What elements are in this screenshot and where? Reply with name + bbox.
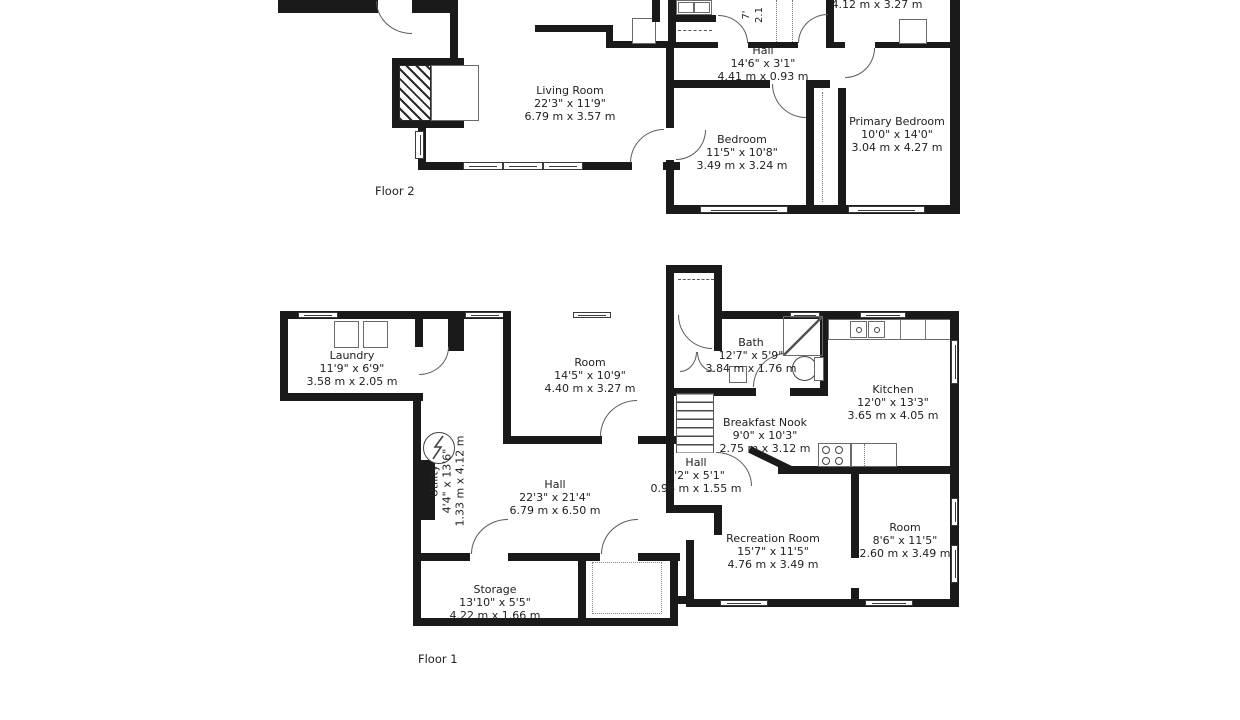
- window: [848, 206, 925, 213]
- room-name: Storage: [450, 583, 541, 596]
- room-dim-m: 3.58 m x 2.05 m: [307, 375, 398, 388]
- wall: [280, 393, 423, 401]
- wall: [830, 42, 845, 48]
- staircase: [676, 393, 714, 453]
- room-dim-m: 2.60 m x 3.49 m: [860, 547, 951, 560]
- burner: [835, 457, 843, 465]
- washer: [334, 321, 359, 348]
- room-dim-ft: 8'6" x 11'5": [860, 534, 951, 547]
- room-name: Living Room: [525, 84, 616, 97]
- closet-rail: [792, 0, 793, 42]
- burner: [835, 446, 843, 454]
- room-name: Kitchen: [848, 383, 939, 396]
- room-name: Hall: [718, 44, 809, 57]
- wall: [714, 311, 959, 319]
- wall: [672, 505, 718, 513]
- burner: [822, 446, 830, 454]
- room-label-kitchen: Kitchen 12'0" x 13'3" 3.65 m x 4.05 m: [848, 383, 939, 422]
- door-arc: [630, 129, 664, 163]
- wall: [851, 474, 859, 558]
- window: [465, 312, 505, 318]
- wall: [503, 311, 511, 444]
- room-label-recreation-room: Recreation Room 15'7" x 11'5" 4.76 m x 3…: [726, 532, 820, 571]
- room-label-storage: Storage 13'10" x 5'5" 4.22 m x 1.66 m: [450, 583, 541, 622]
- room-dim-ft: 11'9" x 6'9": [307, 362, 398, 375]
- wall: [652, 0, 660, 22]
- room-dim-m: 4.76 m x 3.49 m: [726, 558, 820, 571]
- room-name: Room: [860, 521, 951, 534]
- room-name: Bath: [706, 336, 797, 349]
- room-dim-m: 4.12 m x 3.27 m: [832, 0, 923, 11]
- room-label-hall: Hall 14'6" x 3'1" 4.41 m x 0.93 m: [718, 44, 809, 83]
- toilet-tank: [814, 357, 824, 381]
- room-dim-ft: 3'2" x 5'1": [651, 469, 742, 482]
- kitchen-counter: [828, 319, 952, 340]
- room-dim-ft: 14'6" x 3'1": [718, 57, 809, 70]
- fireplace-hearth: [431, 65, 479, 121]
- room-label-hall-large: Hall 22'3" x 21'4" 6.79 m x 6.50 m: [510, 478, 601, 517]
- window: [700, 206, 788, 213]
- wall: [413, 553, 470, 561]
- room-label-room-small: Room 8'6" x 11'5" 2.60 m x 3.49 m: [860, 521, 951, 560]
- wall: [950, 0, 960, 214]
- wall: [666, 43, 674, 128]
- room-label-hall-small: Hall 3'2" x 5'1" 0.96 m x 1.55 m: [651, 456, 742, 495]
- room-label-living-room: Living Room 22'3" x 11'9" 6.79 m x 3.57 …: [525, 84, 616, 123]
- vanity-basin: [678, 2, 694, 13]
- room-name: Utility: [428, 436, 441, 527]
- window: [415, 131, 424, 159]
- wall: [578, 553, 586, 626]
- room-label-primary-bedroom: Primary Bedroom 10'0" x 14'0" 3.04 m x 4…: [849, 115, 945, 154]
- room-label-laundry: Laundry 11'9" x 6'9" 3.58 m x 2.05 m: [307, 349, 398, 388]
- room-dim-m: 0.96 m x 1.55 m: [651, 482, 742, 495]
- wall: [535, 25, 613, 32]
- room-dim-m: 3.65 m x 4.05 m: [848, 409, 939, 422]
- wall: [508, 553, 600, 561]
- room-dim-m: 2.75 m x 3.12 m: [720, 442, 811, 455]
- counter-divider: [925, 320, 926, 339]
- room-dim-ft: 12'7" x 5'9": [706, 349, 797, 362]
- room-dim-m: 4.40 m x 3.27 m: [545, 382, 636, 395]
- wall: [668, 42, 718, 48]
- window: [860, 312, 906, 318]
- wall: [714, 505, 722, 535]
- closet-rail: [822, 92, 823, 202]
- wall: [578, 618, 678, 626]
- room-label-bath: Bath 12'7" x 5'9" 3.84 m x 1.76 m: [706, 336, 797, 375]
- wall: [415, 311, 423, 347]
- room-name: Recreation Room: [726, 532, 820, 545]
- room-dim-ft: 12'0" x 13'3": [848, 396, 939, 409]
- counter-divider: [900, 320, 901, 339]
- room-dim-ft: 22'3" x 11'9": [525, 97, 616, 110]
- door-arc: [845, 48, 875, 78]
- wall: [838, 88, 846, 205]
- room-dim-m: 2.1: [753, 7, 766, 23]
- room-label-top-right-partial: 4.12 m x 3.27 m: [832, 0, 923, 11]
- kitchen-counter: [851, 443, 897, 467]
- counter-divider: [864, 444, 865, 466]
- door-arc: [601, 519, 638, 554]
- unfinished-area: [592, 562, 662, 614]
- room-dim-m: 3.84 m x 1.76 m: [706, 362, 797, 375]
- wall: [666, 311, 674, 444]
- room-dim-ft: 4'4" x 13'6": [441, 436, 454, 527]
- room-name: Room: [545, 356, 636, 369]
- wall: [670, 553, 678, 626]
- furniture: [899, 19, 927, 44]
- window: [865, 600, 913, 606]
- window: [573, 312, 611, 318]
- wall: [668, 15, 716, 22]
- door-arc: [471, 519, 508, 554]
- room-label-utility: Utility 4'4" x 13'6" 1.33 m x 4.12 m: [428, 436, 467, 527]
- door-arc: [419, 347, 449, 375]
- closet-rail: [678, 279, 714, 280]
- wall: [806, 80, 830, 88]
- wall: [814, 205, 838, 214]
- room-dim-m: 6.79 m x 3.57 m: [525, 110, 616, 123]
- room-label-closet-partial: 7' 2.1: [740, 7, 766, 23]
- room-name: Laundry: [307, 349, 398, 362]
- window: [298, 312, 338, 318]
- room-dim-ft: 11'5" x 10'8": [697, 146, 788, 159]
- wall: [668, 0, 676, 48]
- room-label-bedroom: Bedroom 11'5" x 10'8" 3.49 m x 3.24 m: [697, 133, 788, 172]
- vanity-basin: [694, 2, 710, 13]
- room-dim-ft: 10'0" x 14'0": [849, 128, 945, 141]
- dryer: [363, 321, 388, 348]
- room-name: Breakfast Nook: [720, 416, 811, 429]
- floorplan-canvas: 4.12 m x 3.27 m 7' 2.1 Living Room 22'3"…: [0, 0, 1240, 720]
- door-arc: [680, 352, 697, 372]
- window: [951, 340, 958, 384]
- room-dim-m: 6.79 m x 6.50 m: [510, 504, 601, 517]
- room-name: Hall: [651, 456, 742, 469]
- sink-drain: [874, 327, 880, 333]
- floor-1-label: Floor 1: [418, 652, 458, 666]
- fireplace-hatch: [399, 65, 431, 121]
- burner: [822, 457, 830, 465]
- wall: [278, 0, 378, 13]
- room-label-breakfast-nook: Breakfast Nook 9'0" x 10'3" 2.75 m x 3.1…: [720, 416, 811, 455]
- room-dim-ft: 15'7" x 11'5": [726, 545, 820, 558]
- window: [720, 600, 768, 606]
- window: [951, 545, 958, 583]
- room-name: Hall: [510, 478, 601, 491]
- floor-2-label: Floor 2: [375, 184, 415, 198]
- wall: [280, 311, 288, 401]
- wall: [448, 311, 464, 351]
- wall: [450, 0, 458, 62]
- room-dim-ft: 13'10" x 5'5": [450, 596, 541, 609]
- sink-drain: [856, 327, 862, 333]
- window: [503, 162, 543, 170]
- room-dim-m: 1.33 m x 4.12 m: [454, 436, 467, 527]
- room-dim-m: 3.04 m x 4.27 m: [849, 141, 945, 154]
- room-name: Bedroom: [697, 133, 788, 146]
- room-dim-ft: 14'5" x 10'9": [545, 369, 636, 382]
- closet-rail: [776, 0, 777, 42]
- wall: [678, 596, 690, 604]
- room-label-room: Room 14'5" x 10'9" 4.40 m x 3.27 m: [545, 356, 636, 395]
- closet-rail: [678, 30, 712, 31]
- wall: [806, 88, 814, 205]
- room-dim-m: 4.41 m x 0.93 m: [718, 70, 809, 83]
- room-dim-m: 4.22 m x 1.66 m: [450, 609, 541, 622]
- door-arc: [798, 14, 828, 43]
- door-arc: [772, 84, 806, 118]
- door-arc: [600, 400, 637, 436]
- wall: [778, 466, 959, 474]
- room-dim-m: 3.49 m x 3.24 m: [697, 159, 788, 172]
- room-dim-ft: 9'0" x 10'3": [720, 429, 811, 442]
- room-dim-ft: 22'3" x 21'4": [510, 491, 601, 504]
- wall: [503, 436, 602, 444]
- room-name: Primary Bedroom: [849, 115, 945, 128]
- window: [543, 162, 583, 170]
- room-dim-ft: 7': [740, 7, 753, 23]
- window: [463, 162, 503, 170]
- door-arc: [376, 1, 412, 34]
- window: [951, 498, 958, 526]
